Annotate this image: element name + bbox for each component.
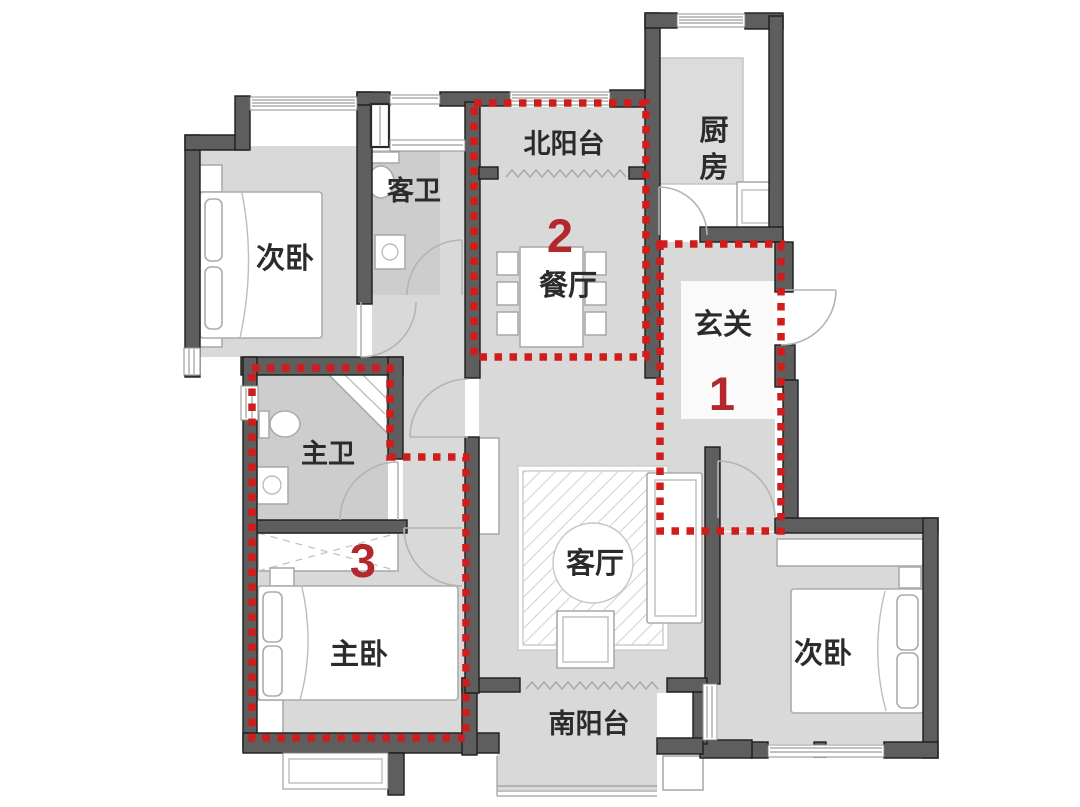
label-living-room: 客厅 <box>566 546 624 580</box>
nightstand <box>899 567 921 588</box>
wall-segment <box>479 167 498 179</box>
pillow <box>205 199 222 261</box>
wall-segment <box>250 520 407 533</box>
sink <box>375 235 405 269</box>
door-entrance <box>781 290 836 345</box>
wall-segment <box>388 753 404 795</box>
label-master-bathroom: 主卫 <box>301 439 355 469</box>
pillow <box>205 267 222 329</box>
window-bedroom-br-bottom <box>768 745 884 757</box>
wall-segment <box>667 678 707 692</box>
wall-segment <box>775 518 938 533</box>
wall-segment <box>235 96 250 150</box>
label-kitchen-line1: 厨 <box>699 115 728 147</box>
floor-corridor-mid <box>403 357 465 528</box>
label-entry-hall: 玄关 <box>694 307 752 341</box>
pillow <box>897 653 918 708</box>
wall-segment <box>645 13 677 28</box>
pillow <box>897 595 918 650</box>
label-north-balcony: 北阳台 <box>524 128 605 159</box>
zone-2-number: 2 <box>547 209 573 262</box>
label-bedroom-top-left: 次卧 <box>256 242 314 275</box>
bay-window-bedroom-top-left <box>250 97 357 110</box>
chair <box>497 252 518 275</box>
label-guest-bathroom: 客卫 <box>387 175 441 206</box>
bedroom-bottom-right-furniture <box>777 539 924 713</box>
window-shaft <box>371 104 389 147</box>
wall-segment <box>884 742 938 758</box>
sink <box>257 467 288 504</box>
label-master-bedroom: 主卧 <box>330 638 388 671</box>
balcony-cabinet <box>663 756 703 790</box>
wall-segment <box>657 738 703 754</box>
window-kitchen <box>677 14 745 27</box>
wall-segment <box>923 518 938 758</box>
zone-3-number: 3 <box>350 534 376 587</box>
toilet-tank <box>259 411 269 438</box>
wall-segment <box>700 227 783 242</box>
zone-1-number: 1 <box>709 367 735 420</box>
chair <box>497 282 518 305</box>
floor-plan-page: 1 2 3 次卧 客卫 北阳台 餐厅 厨 房 玄关 客厅 南阳台 主卫 主卧 次… <box>0 0 1080 807</box>
bay-window-master-bedroom <box>283 753 388 789</box>
label-south-balcony: 南阳台 <box>549 708 630 739</box>
nightstand <box>270 568 294 586</box>
coffee-table <box>557 611 614 668</box>
label-bedroom-bottom-right: 次卧 <box>794 637 852 670</box>
pillow <box>263 592 282 642</box>
window-bedroom-br-left <box>703 684 717 740</box>
wall-segment <box>783 380 798 520</box>
chair <box>585 312 606 335</box>
floor-plan: 1 2 3 次卧 客卫 北阳台 餐厅 厨 房 玄关 客厅 南阳台 主卫 主卧 次… <box>0 0 1080 807</box>
floor-south-balcony-b <box>497 738 657 790</box>
wall-segment <box>769 16 783 242</box>
wall-segment <box>357 92 372 304</box>
toilet-icon <box>270 411 300 437</box>
window-bedroom-left <box>184 348 200 375</box>
pillow <box>263 646 282 696</box>
chair <box>497 312 518 335</box>
label-kitchen-line2: 房 <box>699 151 728 184</box>
tv-cabinet <box>479 438 499 534</box>
wardrobe <box>777 539 923 566</box>
wall-segment <box>185 135 200 377</box>
wall-segment <box>700 740 752 758</box>
nightstand <box>199 165 222 192</box>
wall-segment <box>750 742 768 758</box>
label-dining-room: 餐厅 <box>539 269 597 302</box>
